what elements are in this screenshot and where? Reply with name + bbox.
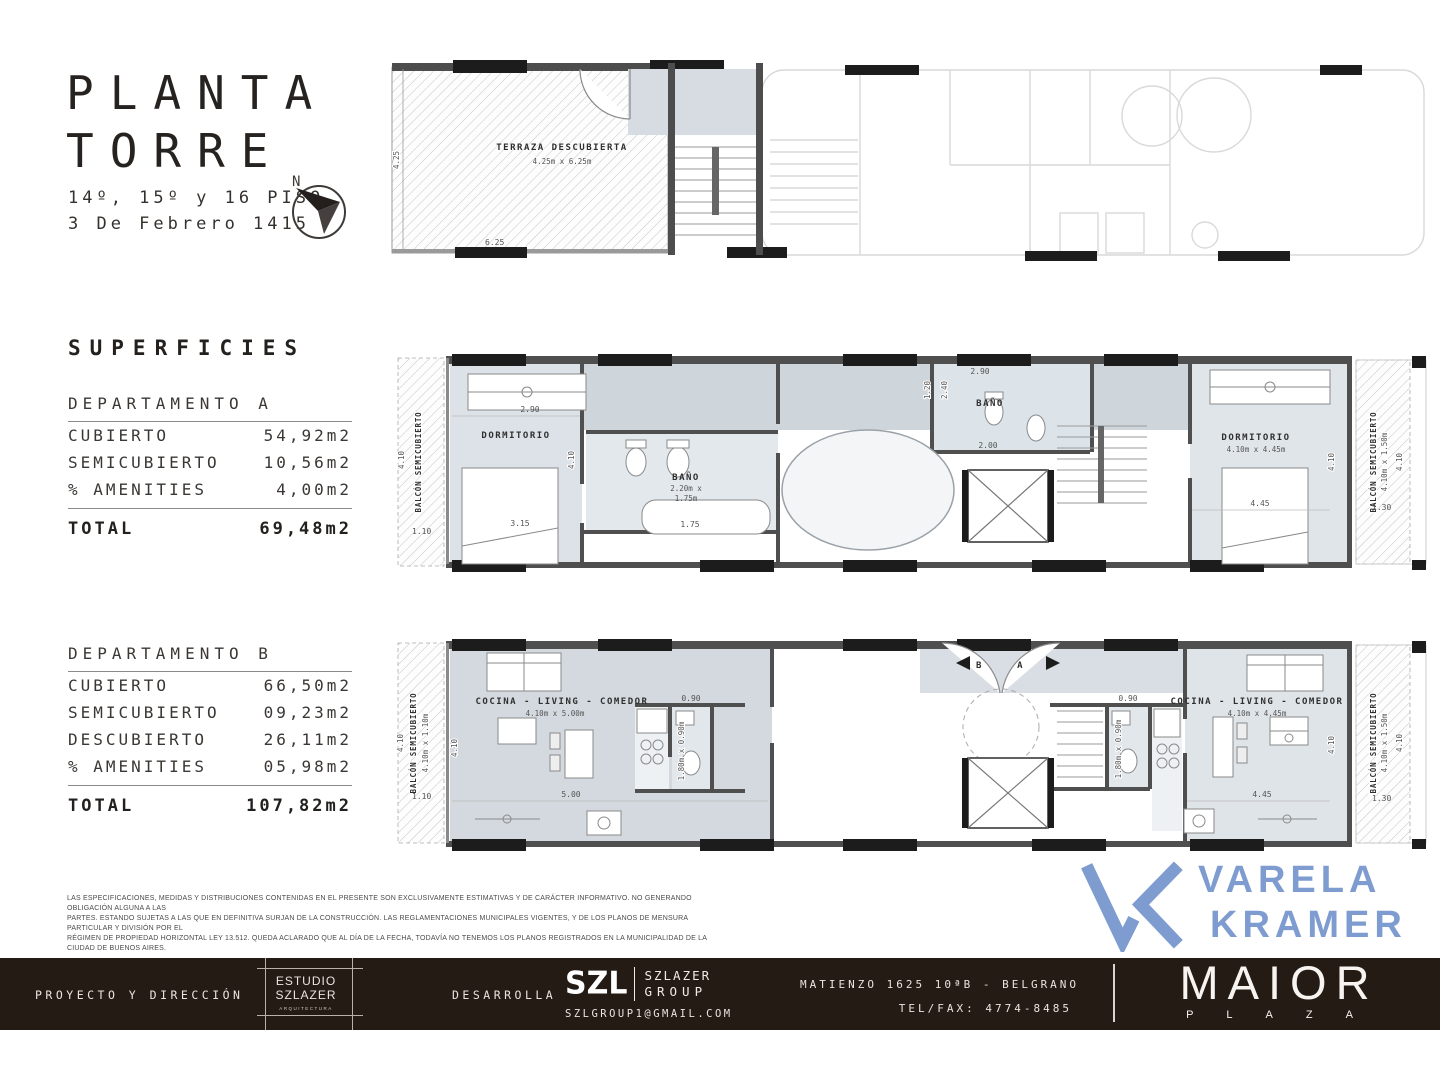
balcony-dim: 4.10 — [396, 733, 405, 752]
bathroom-label: BAÑO — [976, 398, 1004, 409]
footer-divider — [1113, 964, 1115, 1022]
table-row: % AMENITIES 4,00m2 — [68, 476, 352, 503]
balcony-dim: 1.10 — [412, 527, 431, 536]
dim-label: 1.20 — [923, 380, 932, 399]
page-title-line1: PLANTA — [66, 64, 328, 122]
table-row: CUBIERTO 66,50m2 — [68, 672, 352, 699]
dept-b-core — [962, 711, 1103, 828]
balcony-dim: 1.10 — [412, 792, 431, 801]
dim-label: 4.10 — [1327, 452, 1336, 471]
footer-bar: PROYECTO Y DIRECCIÓN ESTUDIO SZLAZER ARQ… — [0, 958, 1440, 1030]
row-label: % AMENITIES — [68, 757, 207, 776]
row-value: 4,00m2 — [276, 480, 352, 499]
dim-label: 4.45 — [1250, 499, 1269, 508]
total-label: TOTAL — [68, 796, 134, 816]
dept-b-balcony-left: BALCÓN SEMICUBIERTO 4.10m x 1.10m 4.10 1… — [396, 643, 444, 843]
living-label: COCINA - LIVING - COMEDOR — [476, 697, 649, 707]
dim-label: 5.00 — [561, 790, 580, 799]
row-label: % AMENITIES — [68, 480, 207, 499]
terrace-label: TERRAZA DESCUBIERTA — [496, 143, 627, 153]
balcony-label: BALCÓN SEMICUBIERTO — [1369, 693, 1378, 794]
bedroom-label: DORMITORIO — [481, 431, 550, 441]
kramer-text: KRAMER — [1198, 903, 1407, 948]
row-value: 66,50m2 — [264, 676, 352, 695]
table-row: % AMENITIES 05,98m2 — [68, 753, 352, 780]
compass-n-label: N — [292, 174, 300, 190]
row-value: 10,56m2 — [264, 453, 352, 472]
dim-label: 4.45 — [1252, 790, 1271, 799]
dim-label: 4.10 — [450, 738, 459, 757]
bath-dim: 0.90 — [1118, 694, 1137, 703]
balcony-dim: 4.10 — [1395, 733, 1404, 752]
dept-b-floor-plan: BALCÓN SEMICUBIERTO 4.10m x 1.10m 4.10 1… — [390, 633, 1440, 858]
disclaimer-line: LAS ESPECIFICACIONES, MEDIDAS Y DISTRIBU… — [67, 894, 715, 914]
balcony-dims: 4.10m x 1.50m — [1380, 713, 1389, 772]
proyecto-direccion-label: PROYECTO Y DIRECCIÓN — [35, 988, 243, 1002]
bath-dims: 1.80m x 0.90m — [1114, 719, 1123, 778]
balcony-label: BALCÓN SEMICUBIERTO — [414, 412, 423, 513]
dept-b-total-row: TOTAL 107,82m2 — [68, 786, 352, 816]
estudio-szlazer-logo: ESTUDIO SZLAZER ARQUITECTURA — [265, 965, 347, 1021]
balcony-label: BALCÓN SEMICUBIERTO — [1369, 412, 1378, 513]
table-row: CUBIERTO 54,92m2 — [68, 422, 352, 449]
vk-mark-icon — [1080, 858, 1184, 952]
terrace-dims-label: 4.25m x 6.25m — [533, 157, 592, 166]
total-value: 107,82m2 — [246, 796, 352, 816]
terrace-dim-bottom: 6.25 — [485, 238, 504, 247]
balcony-dim: 1.30 — [1372, 794, 1391, 803]
bath-dims: 1.80m x 0.90m — [677, 721, 686, 780]
dim-label: 1.75 — [680, 520, 699, 529]
szlazer-group-logo: SZL SZLAZER GROUP — [565, 966, 711, 1001]
dim-label: 4.10 — [1327, 735, 1336, 754]
footer-address: MATIENZO 1625 10ªB - BELGRANO — [800, 978, 1079, 991]
arquitectura-text: ARQUITECTURA — [265, 1006, 347, 1011]
estudio-text: ESTUDIO — [265, 974, 347, 988]
bathroom-label: BAÑO — [672, 472, 700, 483]
table-row: SEMICUBIERTO 09,23m2 — [68, 699, 352, 726]
dim-label: 2.90 — [970, 367, 989, 376]
address-subtitle: 3 De Febrero 1415 — [68, 214, 310, 234]
dept-a-table: DEPARTAMENTO A CUBIERTO 54,92m2 SEMICUBI… — [68, 394, 352, 539]
balcony-dim: 4.10 — [397, 450, 406, 469]
superficies-heading: SUPERFICIES — [68, 336, 306, 360]
terrace-hatched-area — [392, 67, 668, 253]
szl-mark: SZL — [565, 965, 627, 1002]
row-label: DESCUBIERTO — [68, 730, 207, 749]
unit-a-marker: A — [1017, 661, 1024, 671]
bedroom-label: DORMITORIO — [1221, 433, 1290, 443]
dept-b-table: DEPARTAMENTO B CUBIERTO 66,50m2 SEMICUBI… — [68, 644, 352, 816]
balcony-label: BALCÓN SEMICUBIERTO — [409, 693, 418, 794]
total-label: TOTAL — [68, 519, 134, 539]
dept-a-title: DEPARTAMENTO A — [68, 394, 352, 422]
szlazer-name: SZLAZER — [644, 968, 711, 984]
living-dims: 4.10m x 4.45m — [1228, 709, 1287, 718]
dept-a-total-row: TOTAL 69,48m2 — [68, 509, 352, 539]
plan-sheet: PLANTA TORRE 14º, 15º y 16 PISO 3 De Feb… — [0, 0, 1440, 1080]
dept-a-balcony-left: BALCÓN SEMICUBIERTO 4.10 1.10 — [397, 358, 444, 566]
table-row: DESCUBIERTO 26,11m2 — [68, 726, 352, 753]
bath-dim: 0.90 — [681, 694, 700, 703]
bathroom-dims: 2.20m x — [670, 484, 702, 493]
frame-line — [257, 968, 363, 969]
row-value: 09,23m2 — [264, 703, 352, 722]
ghost-column-blocks — [845, 65, 1362, 261]
terrace-floor-plan: 4.25 6.25 TERRAZA DESCUBIERTA 4.25m x 6.… — [390, 55, 1440, 270]
dim-label: 4.10 — [567, 450, 576, 469]
terrace-dim-left: 4.25 — [392, 151, 401, 169]
szl-email: SZLGROUP1@GMAIL.COM — [565, 1008, 733, 1020]
row-label: SEMICUBIERTO — [68, 703, 220, 722]
frame-line — [352, 958, 353, 1030]
bathroom-dims: 1.75m — [675, 494, 698, 503]
varela-kramer-wordmark: VARELA KRAMER — [1198, 858, 1407, 948]
page-title: PLANTA TORRE — [66, 64, 328, 180]
dim-label: 3.15 — [510, 519, 529, 528]
row-label: SEMICUBIERTO — [68, 453, 220, 472]
row-value: 26,11m2 — [264, 730, 352, 749]
table-row: SEMICUBIERTO 10,56m2 — [68, 449, 352, 476]
balcony-dim: 4.10 — [1395, 452, 1404, 471]
total-value: 69,48m2 — [259, 519, 352, 539]
group-name: GROUP — [644, 984, 711, 1000]
szlazer-text: SZLAZER — [265, 988, 347, 1002]
maior-plaza-logo: MAIOR PLAZA — [1150, 958, 1408, 1022]
dim-label: 2.90 — [520, 405, 539, 414]
unit-b-marker: B — [976, 661, 983, 671]
disclaimer-line: RÉGIMEN DE PROPIEDAD HORIZONTAL LEY 13.5… — [67, 934, 715, 954]
maior-text: MAIOR — [1150, 958, 1408, 1008]
frame-line — [257, 1015, 363, 1016]
dept-a-floor-plan: BALCÓN SEMICUBIERTO 4.10 1.10 BALCÓN SEM… — [390, 348, 1440, 578]
row-label: CUBIERTO — [68, 676, 169, 695]
varela-text: VARELA — [1198, 858, 1407, 903]
varela-kramer-logo: VARELA KRAMER — [1080, 858, 1430, 955]
frame-line — [265, 958, 266, 1030]
dept-b-balcony-right: BALCÓN SEMICUBIERTO 4.10m x 1.50m 4.10 1… — [1356, 641, 1426, 849]
plaza-text: PLAZA — [1164, 1008, 1408, 1022]
ghost-floor-outline — [762, 70, 1424, 255]
dim-label: 2.40 — [940, 380, 949, 399]
row-value: 05,98m2 — [264, 757, 352, 776]
compass-north-icon: N — [286, 170, 350, 242]
balcony-dims: 4.10m x 1.10m — [421, 713, 430, 772]
living-label: COCINA - LIVING - COMEDOR — [1171, 697, 1344, 707]
footer-phone: TEL/FAX: 4774-8485 — [800, 1002, 1072, 1015]
logo-divider — [634, 967, 635, 1001]
disclaimer-line: PARTES. ESTANDO SUJETAS A LAS QUE EN DEF… — [67, 914, 715, 934]
desarrolla-label: DESARROLLA — [452, 988, 556, 1002]
legal-disclaimer: LAS ESPECIFICACIONES, MEDIDAS Y DISTRIBU… — [67, 894, 715, 954]
balcony-dim: 1.30 — [1372, 503, 1391, 512]
dept-a-balcony-right: BALCÓN SEMICUBIERTO 4.10m x 1.50m 4.10 1… — [1356, 356, 1426, 570]
bedroom-dims: 4.10m x 4.45m — [1227, 445, 1286, 454]
dim-label: 2.00 — [978, 441, 997, 450]
row-value: 54,92m2 — [264, 426, 352, 445]
row-label: CUBIERTO — [68, 426, 169, 445]
living-dims: 4.10m x 5.00m — [526, 709, 585, 718]
balcony-dims: 4.10m x 1.50m — [1380, 432, 1389, 491]
dept-b-title: DEPARTAMENTO B — [68, 644, 352, 672]
